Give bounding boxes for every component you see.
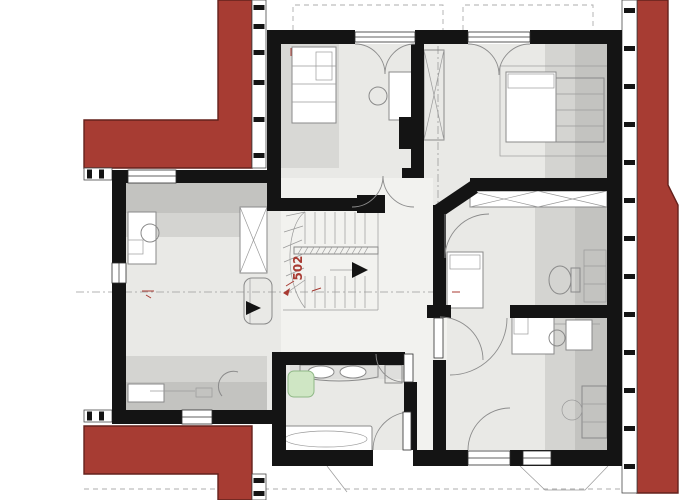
stair-dimension-label: 502 bbox=[291, 255, 305, 280]
desk-left-room bbox=[128, 212, 159, 264]
floor-plan-drawing: 502 bbox=[0, 0, 700, 500]
bathroom-bench bbox=[288, 371, 314, 397]
window-bottom-right bbox=[523, 451, 551, 465]
window-left-wing-top bbox=[128, 170, 176, 183]
roof-right bbox=[637, 0, 678, 493]
bathtub bbox=[280, 426, 372, 452]
roof-top-left bbox=[84, 0, 252, 168]
wardrobe-top-left-room bbox=[292, 47, 336, 123]
wardrobe-left-room bbox=[240, 207, 267, 273]
window-left-wing-bottom bbox=[182, 410, 212, 424]
window-left-wall bbox=[112, 263, 126, 283]
long-wardrobe-middle-right bbox=[470, 191, 607, 207]
bed-middle-right-room bbox=[447, 252, 483, 308]
floor-plan-page: 502 bbox=[0, 0, 700, 500]
